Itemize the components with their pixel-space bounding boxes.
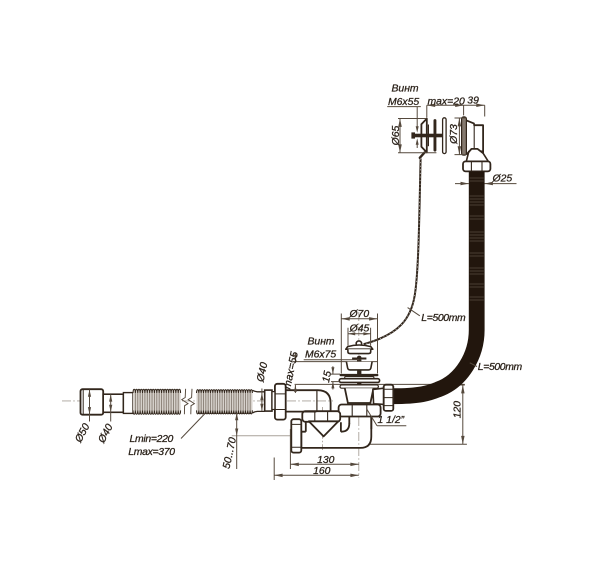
svg-text:max=20: max=20 (428, 96, 465, 107)
svg-text:L=500mm: L=500mm (421, 313, 466, 324)
svg-text:Ø65: Ø65 (391, 125, 402, 146)
svg-text:120: 120 (453, 401, 464, 419)
svg-text:Ø73: Ø73 (449, 124, 460, 145)
svg-text:Винт: Винт (308, 337, 335, 348)
svg-text:Ø25: Ø25 (492, 174, 513, 185)
svg-text:М6х75: М6х75 (305, 349, 336, 360)
svg-text:Ø70: Ø70 (348, 309, 369, 320)
svg-text:130: 130 (317, 455, 335, 466)
svg-text:L=500mm: L=500mm (478, 362, 523, 373)
svg-text:160: 160 (313, 466, 331, 477)
svg-text:39: 39 (467, 95, 479, 106)
svg-text:Винт: Винт (392, 84, 419, 95)
svg-text:Lmin=220: Lmin=220 (130, 434, 174, 445)
svg-text:Lmax=370: Lmax=370 (128, 447, 175, 458)
svg-text:1 1/2”: 1 1/2” (378, 415, 405, 426)
svg-text:Ø45: Ø45 (349, 324, 370, 335)
